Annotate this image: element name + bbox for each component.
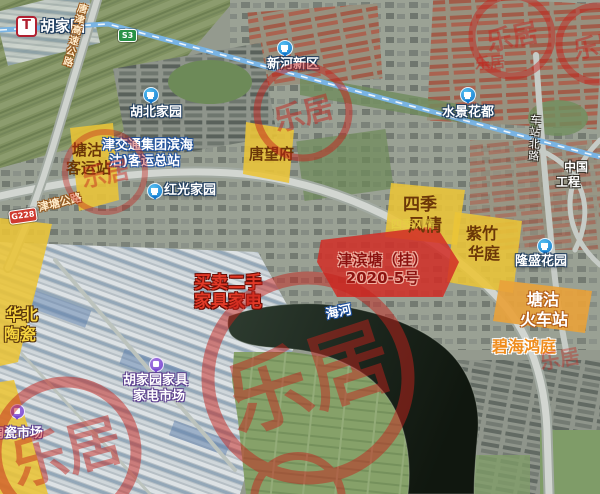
zone-label-zizhu-1[interactable]: 紫竹 <box>466 225 498 243</box>
community-icon-hubeijiayuan[interactable] <box>143 87 159 103</box>
poi-hubeijiayuan[interactable]: 胡北家园 <box>130 106 182 121</box>
zone-label-siji-1[interactable]: 四季 <box>403 196 437 216</box>
ad-secondhand-line2: 家具家电 <box>194 293 262 313</box>
taoci-market-icon[interactable] <box>10 404 25 419</box>
edge-text-line1: 中国 <box>564 161 588 175</box>
community-icon-xinhexinqu[interactable] <box>277 40 293 56</box>
parcel-label-line2[interactable]: 2020-5号 <box>330 270 435 287</box>
map-terrain <box>0 0 600 494</box>
estate-bihaihongting: 碧海鸿庭 <box>492 338 556 356</box>
ad-secondhand-line1: 买卖二手 <box>194 274 262 294</box>
zone-label-huabei-1[interactable]: 华北 <box>6 306 38 324</box>
zone-label-huochezhan-1[interactable]: 塘沽 <box>527 291 559 309</box>
poi-longshenghuayuan[interactable]: 隆盛花园 <box>515 255 567 270</box>
north-road-name-label: 车站北路 <box>526 114 541 163</box>
zone-label-huabei-2[interactable]: 陶瓷 <box>4 326 36 344</box>
poi-shuijinghuadu[interactable]: 水景花都 <box>442 106 494 121</box>
expressway-shield: S3 <box>118 29 137 42</box>
market-icon[interactable] <box>149 357 164 372</box>
community-icon-shuijinghuadu[interactable] <box>460 87 476 103</box>
bus-terminal-line1[interactable]: 津交通集团滨海 <box>102 139 193 154</box>
zone-label-zizhu-2[interactable]: 华庭 <box>468 245 500 263</box>
zone-label-keyunzhan-1[interactable]: 塘沽 <box>72 142 102 159</box>
metro-station-icon[interactable]: T <box>16 16 37 37</box>
bus-terminal-line2[interactable]: 沽)客运总站 <box>109 155 180 170</box>
zone-label-tangwangfu[interactable]: 唐望府 <box>249 146 294 163</box>
market-label-line2[interactable]: 家电市场 <box>133 390 185 405</box>
community-icon-longshenghuayuan[interactable] <box>537 238 553 254</box>
zone-label-huochezhan-2[interactable]: 火车站 <box>520 311 568 329</box>
satellite-map[interactable]: T 胡家园 S3 G228 唐津高速公路 津塘公路 车站北路 新河新区 胡北家园… <box>0 0 600 494</box>
poi-xinhexinqu[interactable]: 新河新区 <box>267 58 319 73</box>
edge-text-line2: 工程 <box>556 176 580 190</box>
market-label-line1[interactable]: 胡家园家具 <box>123 374 188 389</box>
community-icon-hongguangjiayuan[interactable] <box>147 183 163 199</box>
taoci-market-label[interactable]: 陶瓷市场 <box>0 427 43 442</box>
zone-label-keyunzhan-2[interactable]: 客运站 <box>66 160 111 177</box>
parcel-label-line1[interactable]: 津滨塘（挂） <box>330 252 435 269</box>
poi-hongguangjiayuan[interactable]: 红光家园 <box>164 184 216 199</box>
zone-ghost-siji: 四季风情 <box>391 219 435 232</box>
